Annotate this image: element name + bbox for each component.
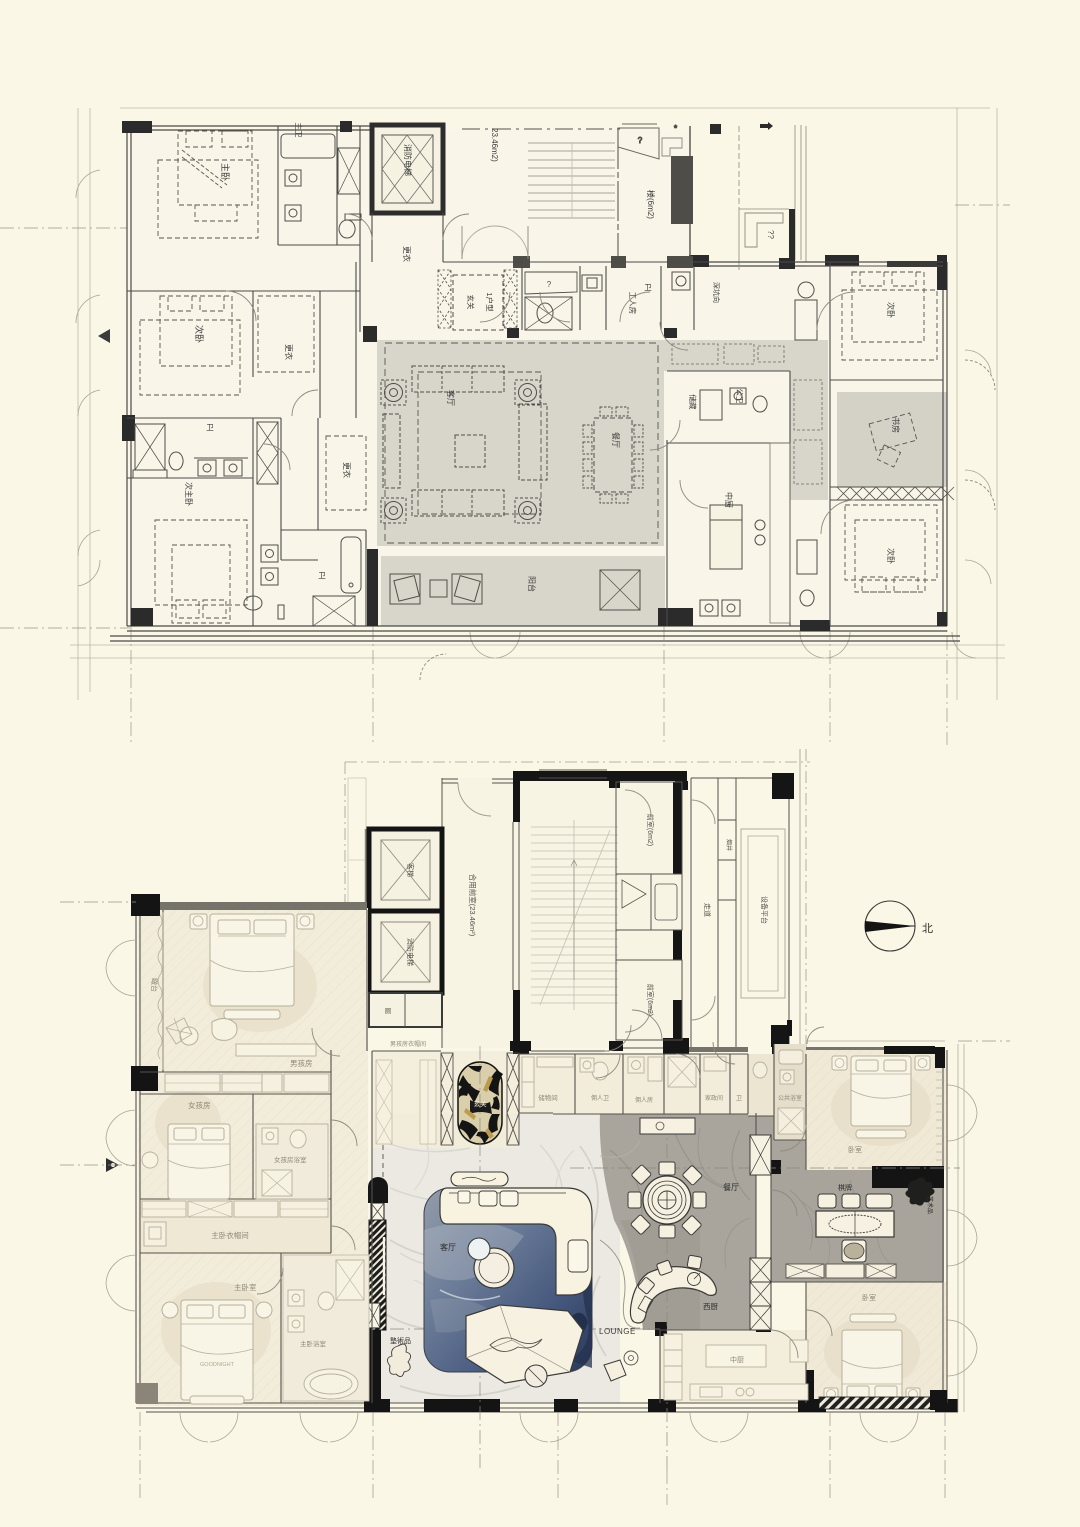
svg-text:次卧: 次卧 — [194, 325, 205, 343]
svg-text:客厅: 客厅 — [446, 390, 456, 406]
svg-text:中厨: 中厨 — [730, 1355, 744, 1364]
svg-text:更衣: 更衣 — [402, 246, 412, 262]
svg-text:主卧浴室: 主卧浴室 — [300, 1339, 327, 1348]
svg-text:更衣: 更衣 — [284, 344, 294, 360]
svg-text:餐厅: 餐厅 — [723, 1183, 739, 1192]
svg-text:前室(6m2): 前室(6m2) — [646, 814, 655, 846]
svg-text:餐厅: 餐厅 — [611, 432, 620, 448]
svg-text:男孩房: 男孩房 — [290, 1058, 313, 1068]
svg-text:公卫: 公卫 — [735, 389, 744, 404]
svg-text:公共浴室: 公共浴室 — [778, 1094, 802, 1102]
svg-text:消防电梯: 消防电梯 — [406, 938, 415, 966]
svg-text:卫: 卫 — [644, 283, 652, 292]
svg-text:玄关: 玄关 — [466, 295, 476, 310]
svg-text:*: * — [674, 124, 677, 133]
svg-text:前室(6m2): 前室(6m2) — [646, 984, 655, 1016]
svg-text:北: 北 — [922, 922, 933, 935]
svg-text:23.46m2): 23.46m2) — [490, 128, 499, 162]
svg-text:楼(6m2): 楼(6m2) — [646, 190, 656, 219]
svg-text:设备平台: 设备平台 — [760, 896, 769, 924]
svg-text:烟井: 烟井 — [725, 839, 733, 851]
svg-text:阳台: 阳台 — [527, 576, 537, 592]
svg-text:主卧室: 主卧室 — [234, 1282, 257, 1292]
svg-text:次主卧: 次主卧 — [184, 482, 194, 506]
svg-text:工人房: 工人房 — [628, 292, 638, 315]
svg-text:卧室: 卧室 — [848, 1145, 862, 1154]
svg-text:走道: 走道 — [703, 903, 712, 917]
svg-text:家政间: 家政间 — [705, 1094, 723, 1102]
svg-text:棋牌: 棋牌 — [838, 1183, 852, 1192]
svg-text:次卧: 次卧 — [886, 302, 896, 318]
svg-text:客厅: 客厅 — [440, 1242, 456, 1252]
svg-text:佣人房: 佣人房 — [635, 1096, 653, 1104]
svg-text:卫: 卫 — [206, 423, 214, 432]
svg-text:主卧: 主卧 — [220, 163, 231, 181]
svg-text:更衣: 更衣 — [342, 462, 352, 478]
svg-text:?: ? — [547, 280, 552, 289]
svg-text:储藏: 储藏 — [688, 395, 698, 410]
svg-text:卫: 卫 — [736, 1095, 742, 1102]
svg-text:深坑向: 深坑向 — [712, 282, 721, 303]
svg-text:中厨: 中厨 — [724, 492, 734, 508]
svg-text:艺术品: 艺术品 — [926, 1196, 934, 1214]
svg-text:GOODNIGHT: GOODNIGHT — [200, 1362, 235, 1368]
svg-text:主卧衣帽间: 主卧衣帽间 — [211, 1230, 249, 1240]
svg-text:主卫: 主卫 — [294, 123, 304, 138]
svg-text:男孩房衣帽间: 男孩房衣帽间 — [390, 1040, 426, 1048]
svg-text:西厨: 西厨 — [703, 1302, 718, 1311]
svg-text:厕: 厕 — [385, 1007, 392, 1015]
svg-text:佣人卫: 佣人卫 — [591, 1094, 609, 1102]
svg-text:卫: 卫 — [318, 571, 326, 580]
svg-text:储物间: 储物间 — [538, 1093, 558, 1102]
svg-text:消防电梯: 消防电梯 — [403, 144, 413, 176]
svg-text:墊術品: 墊術品 — [390, 1336, 411, 1345]
svg-text:??: ?? — [766, 230, 775, 239]
svg-text:卧室: 卧室 — [862, 1293, 876, 1302]
svg-text:瞰台: 瞰台 — [150, 978, 159, 992]
svg-text:客梯: 客梯 — [406, 863, 415, 877]
svg-text:书房: 书房 — [891, 417, 901, 433]
svg-text:女孩房浴室: 女孩房浴室 — [274, 1155, 307, 1164]
svg-text:1户型: 1户型 — [485, 292, 495, 312]
svg-text:女孩房: 女孩房 — [188, 1100, 211, 1110]
svg-text:次卧: 次卧 — [886, 548, 896, 564]
svg-text:合用前室(23.46m²): 合用前室(23.46m²) — [468, 874, 478, 937]
svg-text:LOUNGE: LOUNGE — [599, 1327, 636, 1336]
svg-text:?: ? — [638, 136, 643, 145]
